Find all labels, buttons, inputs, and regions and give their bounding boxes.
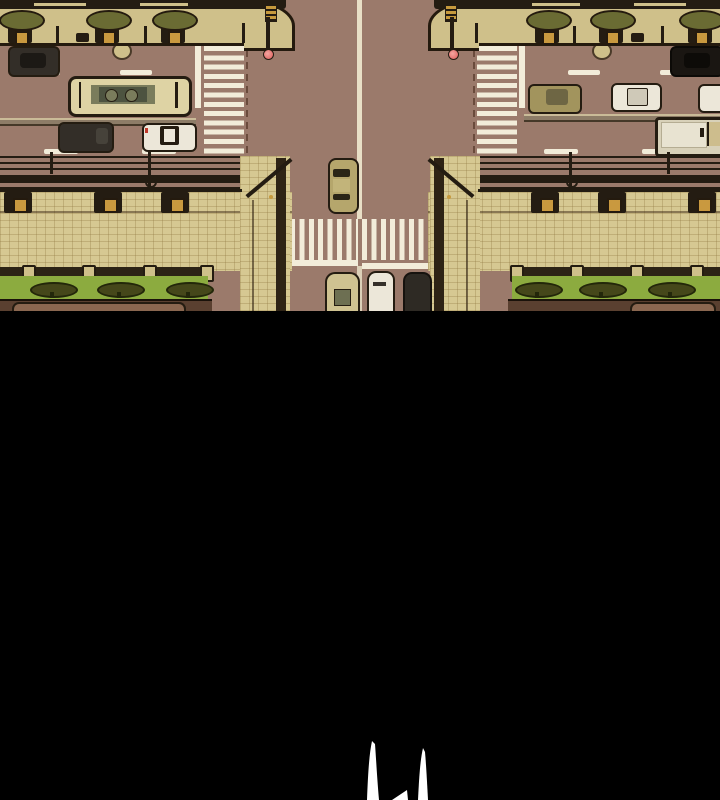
wall-slit xyxy=(34,3,86,6)
sign-box-opening xyxy=(13,198,28,213)
crosswalk-right xyxy=(477,46,517,158)
stop-bar-left xyxy=(195,46,201,108)
black-sedan xyxy=(670,46,720,77)
street-scene xyxy=(0,0,720,311)
building-pillar-left xyxy=(276,158,286,311)
lane-dash xyxy=(544,149,578,154)
awning-tree-print xyxy=(97,282,145,298)
planter-opening xyxy=(695,31,709,45)
bus-roof-vent xyxy=(125,89,138,102)
crosswalk-edge-left xyxy=(246,50,248,156)
utility-box xyxy=(76,33,89,42)
awning-tree-print xyxy=(515,282,563,298)
planter-opening xyxy=(102,31,116,45)
wire-loop xyxy=(566,176,578,188)
white-van-waiting xyxy=(367,271,395,311)
car-windows xyxy=(684,53,710,68)
bollard xyxy=(661,26,664,43)
signal-side-pole xyxy=(475,23,478,43)
tan-van-waiting xyxy=(325,272,360,311)
utility-box xyxy=(631,33,644,42)
planter-opening xyxy=(15,31,29,45)
dark-sedan-2 xyxy=(58,122,114,153)
car-roof xyxy=(627,88,648,106)
sign-box-opening xyxy=(103,198,118,213)
white-sedan xyxy=(611,83,662,112)
awning-tree-print xyxy=(648,282,696,298)
storefront-counter xyxy=(630,302,716,311)
sfx-glyph xyxy=(355,733,445,800)
signal-pole xyxy=(450,17,454,51)
wire-hook xyxy=(50,152,53,174)
wall-slit xyxy=(532,3,580,6)
white-police-car xyxy=(142,123,197,152)
building-light xyxy=(269,195,273,199)
car-roof xyxy=(333,179,350,192)
pedestrian-signal-red xyxy=(263,49,274,60)
awning-tree-print xyxy=(166,282,214,298)
olive-sedan xyxy=(528,84,582,114)
tan-car-northbound xyxy=(328,158,359,214)
building-seam xyxy=(252,200,254,311)
bus-window-band xyxy=(91,85,155,104)
car-rear-window xyxy=(333,194,350,200)
car-windows xyxy=(20,53,46,68)
car-windows xyxy=(546,89,568,105)
wall-slit xyxy=(140,3,188,6)
signal-pole xyxy=(266,17,270,51)
stop-line-center-left xyxy=(288,260,358,266)
awning-tree-trunk xyxy=(50,292,54,298)
lane-dash xyxy=(568,70,600,75)
awning-tree-print xyxy=(30,282,78,298)
crosswalk-center-right-half xyxy=(362,219,430,260)
stop-line-center-right xyxy=(362,263,432,269)
car-windshield xyxy=(333,169,350,177)
tree-canopy xyxy=(679,10,720,31)
planter-opening xyxy=(606,31,620,45)
car-hood xyxy=(96,128,108,144)
tree-canopy xyxy=(590,10,636,31)
truck-cab xyxy=(707,122,720,146)
awning-tree-trunk xyxy=(599,292,603,298)
pedestrian-signal-red xyxy=(448,49,459,60)
lane-dash xyxy=(120,70,152,75)
box-truck xyxy=(655,117,720,157)
crosswalk-edge-right xyxy=(473,50,475,156)
storefront-counter xyxy=(12,302,186,311)
dark-car-waiting xyxy=(403,272,432,311)
wire-loop xyxy=(145,176,157,188)
truck-handle xyxy=(700,128,704,137)
awning-tree-trunk xyxy=(186,292,190,298)
white-sedan-partial xyxy=(698,84,720,113)
awning-tree-trunk xyxy=(535,292,539,298)
bollard xyxy=(144,26,147,43)
panel-gutter xyxy=(0,311,720,800)
bollard xyxy=(573,26,576,43)
van-sunroof xyxy=(334,289,351,306)
tree-canopy xyxy=(0,10,45,31)
crosswalk-center-left-half xyxy=(290,219,358,260)
wire-hook xyxy=(667,152,670,174)
tree-canopy xyxy=(86,10,132,31)
sign-box-opening xyxy=(697,198,712,213)
awning-bar-right xyxy=(510,267,720,276)
taillight xyxy=(145,128,148,133)
awning-tree-print xyxy=(579,282,627,298)
bollard xyxy=(56,26,59,43)
wall-slit xyxy=(634,3,686,6)
van-windshield xyxy=(373,282,386,286)
sign-box-opening xyxy=(540,198,555,213)
awning-tree-trunk xyxy=(117,292,121,298)
dark-sedan xyxy=(8,46,60,77)
building-seam xyxy=(466,200,468,311)
comic-panel xyxy=(0,0,720,800)
building-pillar-right xyxy=(434,158,444,311)
tree-canopy xyxy=(526,10,572,31)
planter-opening xyxy=(168,31,182,45)
bus-rear-line xyxy=(79,82,81,108)
crosswalk-left xyxy=(204,46,244,158)
sign-box-opening xyxy=(170,198,185,213)
awning-tree-trunk xyxy=(668,292,672,298)
bus-roof-vent xyxy=(105,89,118,102)
sign-box-opening xyxy=(607,198,622,213)
bus-front-line xyxy=(175,82,178,108)
cream-bus xyxy=(68,76,192,117)
signal-side-pole xyxy=(242,23,245,43)
car-roof xyxy=(164,129,175,142)
stop-bar-right xyxy=(519,46,525,108)
tree-canopy xyxy=(152,10,198,31)
building-light xyxy=(447,195,451,199)
planter-opening xyxy=(542,31,556,45)
